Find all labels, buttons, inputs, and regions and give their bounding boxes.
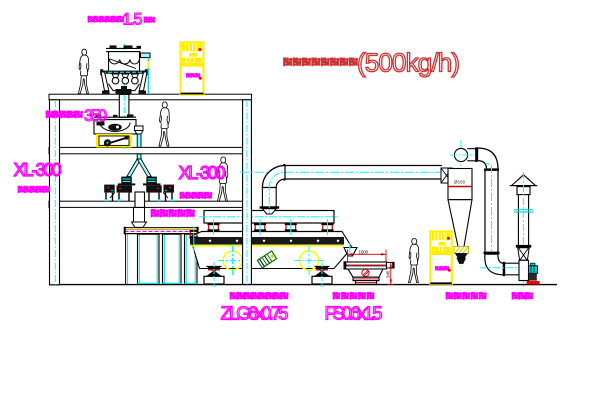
svg-text:XL-300: XL-300 [179,163,226,183]
svg-text:1.5: 1.5 [123,11,143,29]
svg-text:345: 345 [385,270,390,278]
svg-text:1500: 1500 [359,250,369,255]
svg-text:(500kg/h): (500kg/h) [357,48,460,78]
svg-text:Ø500: Ø500 [454,180,466,185]
svg-text:ZLG6x0.75: ZLG6x0.75 [221,303,289,324]
svg-text:XL-300: XL-300 [14,160,62,180]
svg-text:350: 350 [84,107,107,125]
svg-text:FS0.6x1.5: FS0.6x1.5 [325,303,383,324]
